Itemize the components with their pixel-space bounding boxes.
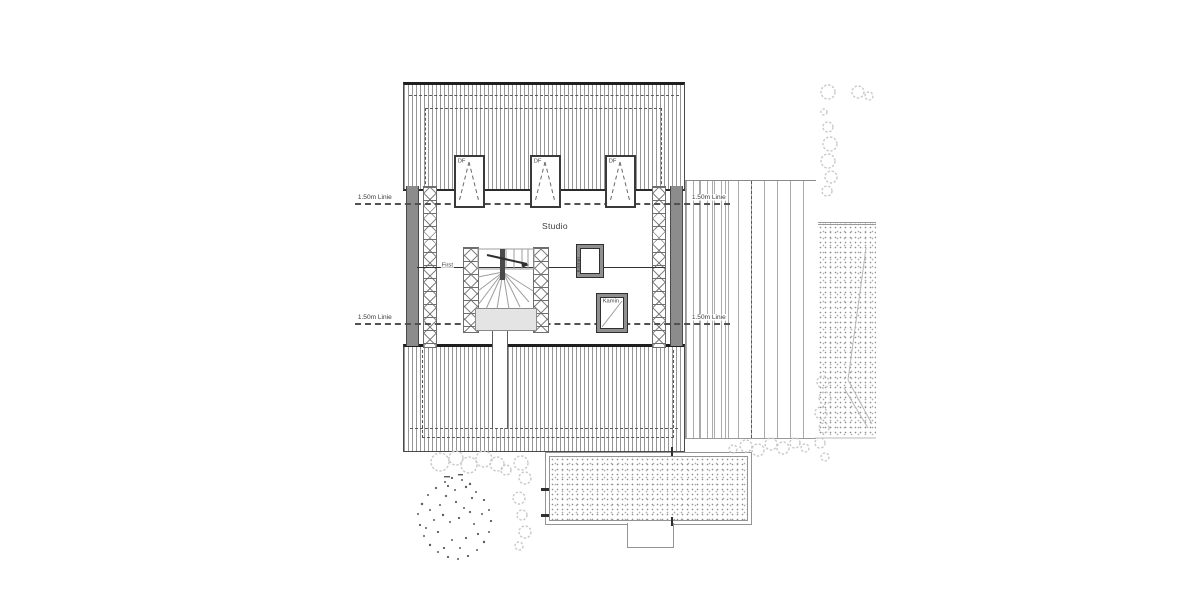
tree-symbol [417,474,492,560]
deck-fine-boards [686,181,731,438]
roof-window: DF [454,155,485,208]
terrace-door-tick [541,488,549,491]
height-line-label: 1.50m Linie [691,194,727,201]
winder-stair-icon [463,247,549,331]
lower-roof-hatch [403,344,685,452]
gravel-area-right [818,222,876,435]
floor-plan-canvas: DF DF DF 1.50m Linie 1.50m Linie 1.50m L… [0,0,1200,600]
roof-window-label: DF [457,158,466,164]
stair-block [463,247,549,331]
chimney-upper: Kamin [577,245,603,277]
terrace-axis-tick [671,447,673,456]
terrace [545,452,752,525]
height-line-label: 1.50m Linie [357,314,393,321]
window-swing-icon [607,157,634,206]
ridge-label: First [441,262,454,268]
height-line-label: 1.50m Linie [357,194,393,201]
terrace-axis-tick [671,517,673,526]
deck-centerline [751,181,752,438]
chimney-lower: Kamin [597,294,627,332]
height-line-label: 1.50m Linie [691,314,727,321]
window-swing-icon [532,157,559,206]
lower-roof-inner-dashed-rect [422,350,674,438]
chimney-upper-label: Kamin [577,256,582,273]
upper-roof-eaves-dashed-line [409,95,679,96]
terrace-door-tick [541,514,549,517]
left-exterior-wall [406,186,419,346]
roof-window-label: DF [608,158,617,164]
roof-window: DF [605,155,636,208]
room-label: Studio [541,222,569,231]
roof-window-label: DF [533,158,542,164]
terrace-step [627,523,674,548]
adjacent-roof-deck [685,180,816,439]
chimney-lower-label: Kamin [602,298,620,304]
stair-stem-shaft [492,331,508,428]
right-exterior-wall [670,186,683,346]
terrace-paving [549,456,748,521]
window-swing-icon [456,157,483,206]
roof-window: DF [530,155,561,208]
